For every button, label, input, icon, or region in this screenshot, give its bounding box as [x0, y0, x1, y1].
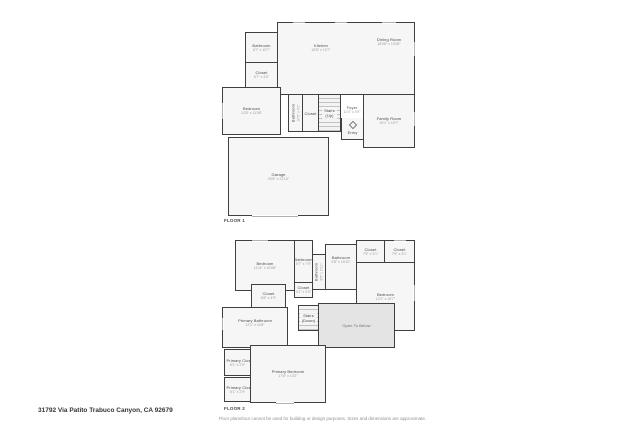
room-dims: 6'7" x 4'0" — [254, 75, 269, 79]
floor1-label: FLOOR 1 — [224, 218, 245, 223]
window-marker — [221, 103, 224, 119]
room-dims: 17'8" x 13'2" — [278, 374, 297, 378]
room-dims: 11'11" x 10'08" — [254, 266, 277, 270]
room-dims: 11'4" x 4'9" — [344, 110, 361, 114]
room-bathroom-f1-stair-hall: Bathroom 10'5" x 4'1" — [288, 94, 303, 132]
window-marker — [252, 239, 268, 242]
room-family-room-f1: Family Room 16'1" x 15'7" — [363, 94, 415, 148]
room-primary-closet1-f2: Primary Closet 5'1" x 2'9" — [224, 349, 251, 376]
stairs-direction: (Down) — [302, 318, 316, 323]
window-marker — [293, 21, 305, 24]
room-garage-f1: Garage 20'8" x 21'10" — [228, 137, 329, 216]
room-dims: 8'5" x 2'11" — [319, 264, 323, 281]
room-closet-f2-left: Closet 8'8" x 4'9" — [251, 284, 286, 308]
window-marker — [276, 402, 294, 405]
room-closet-f1-stairs: Closet — [302, 94, 319, 132]
room-primary-bathroom-f2: Primary Bathroom 12'1" x 10'8" — [222, 307, 288, 348]
room-bathroom-f2-top: Bathroom 5'7" x 7'9" — [294, 240, 313, 283]
stairs-up-f1: Stairs (Up) — [318, 94, 341, 132]
open-to-below-area: Open To Below — [318, 303, 395, 348]
window-marker — [221, 318, 224, 330]
window-marker — [413, 42, 416, 56]
room-dims: 20'8" x 21'10" — [268, 177, 289, 181]
room-dims: 7'5" x 3'1" — [363, 252, 378, 256]
property-address: 31792 Via Patito Trabuco Canyon, CA 9267… — [38, 407, 173, 414]
room-dims: 9'8" x 10'10" — [331, 260, 350, 264]
room-name: Open To Below — [342, 323, 370, 328]
window-marker — [413, 112, 416, 126]
stairs-down-f2: Stairs (Down) — [298, 305, 319, 331]
room-entry-f1: Entry — [341, 118, 364, 140]
room-great-room-f1: Kitchen 18'8" x 13'7" Dining Room 18'08"… — [277, 22, 415, 95]
room-dims: 18'8" x 13'7" — [311, 48, 330, 52]
window-marker — [382, 21, 396, 24]
room-dims: 12'8" x 11'08" — [241, 111, 262, 115]
room-label-dining-room: Dining Room 18'08" x 13'08" — [366, 37, 412, 46]
room-bathroom-f2-mid: Bathroom 8'5" x 2'11" — [312, 254, 326, 290]
window-marker — [394, 239, 406, 242]
floor2-label: FLOOR 2 — [224, 406, 245, 411]
room-closet-f2-hall: Closet 4'1" x 2'9" — [294, 282, 313, 298]
disclaimer-text: Floor plans/tour cannot be used for buil… — [200, 416, 445, 421]
room-dims: 8'8" x 4'9" — [261, 296, 276, 300]
room-dims: 12'1" x 10'8" — [245, 323, 264, 327]
room-dims: 5'7" x 7'9" — [296, 262, 311, 266]
room-primary-bedroom-f2: Primary Bedroom 17'8" x 13'2" — [250, 345, 326, 403]
room-dims: 18'08" x 13'08" — [377, 42, 400, 46]
room-dims: 16'1" x 15'7" — [379, 121, 398, 125]
window-marker — [413, 285, 416, 301]
room-label-kitchen: Kitchen 18'8" x 13'7" — [290, 43, 352, 52]
room-bedroom-f1: Bedroom 12'8" x 11'08" — [222, 87, 281, 135]
room-dims: 7'5" x 3'1" — [392, 252, 407, 256]
floorplan-page: Kitchen 18'8" x 13'7" Dining Room 18'08"… — [0, 0, 640, 427]
entry-marker-icon — [348, 121, 356, 129]
room-dims: 4'1" x 2'9" — [296, 290, 311, 294]
room-closet-f2-right1: Closet 7'5" x 3'1" — [356, 240, 385, 263]
room-dims: 5'1" x 2'9" — [230, 363, 245, 367]
room-bathroom-f2-center: Bathroom 9'8" x 10'10" — [325, 244, 357, 290]
window-marker — [335, 21, 347, 24]
room-name: Closet — [305, 111, 317, 116]
room-bathroom-f1: Bathroom 6'7" x 10'7" — [245, 32, 278, 63]
room-closet-f1-hall: Closet 6'7" x 4'0" — [245, 62, 278, 88]
room-dims: 12'1" x 10'7" — [376, 297, 395, 301]
room-name: Bathroom — [291, 104, 296, 122]
garage-door-marker — [252, 215, 298, 218]
room-name: Entry — [348, 130, 358, 135]
room-dims: 6'7" x 10'7" — [253, 48, 270, 52]
stairs-direction: (Up) — [325, 113, 333, 118]
room-closet-f2-right2: Closet 7'5" x 3'1" — [384, 240, 415, 263]
room-dims: 5'1" x 2'9" — [230, 390, 245, 394]
room-primary-closet2-f2: Primary Closet 5'1" x 2'9" — [224, 377, 251, 402]
room-dims: 10'5" x 4'1" — [296, 104, 300, 121]
